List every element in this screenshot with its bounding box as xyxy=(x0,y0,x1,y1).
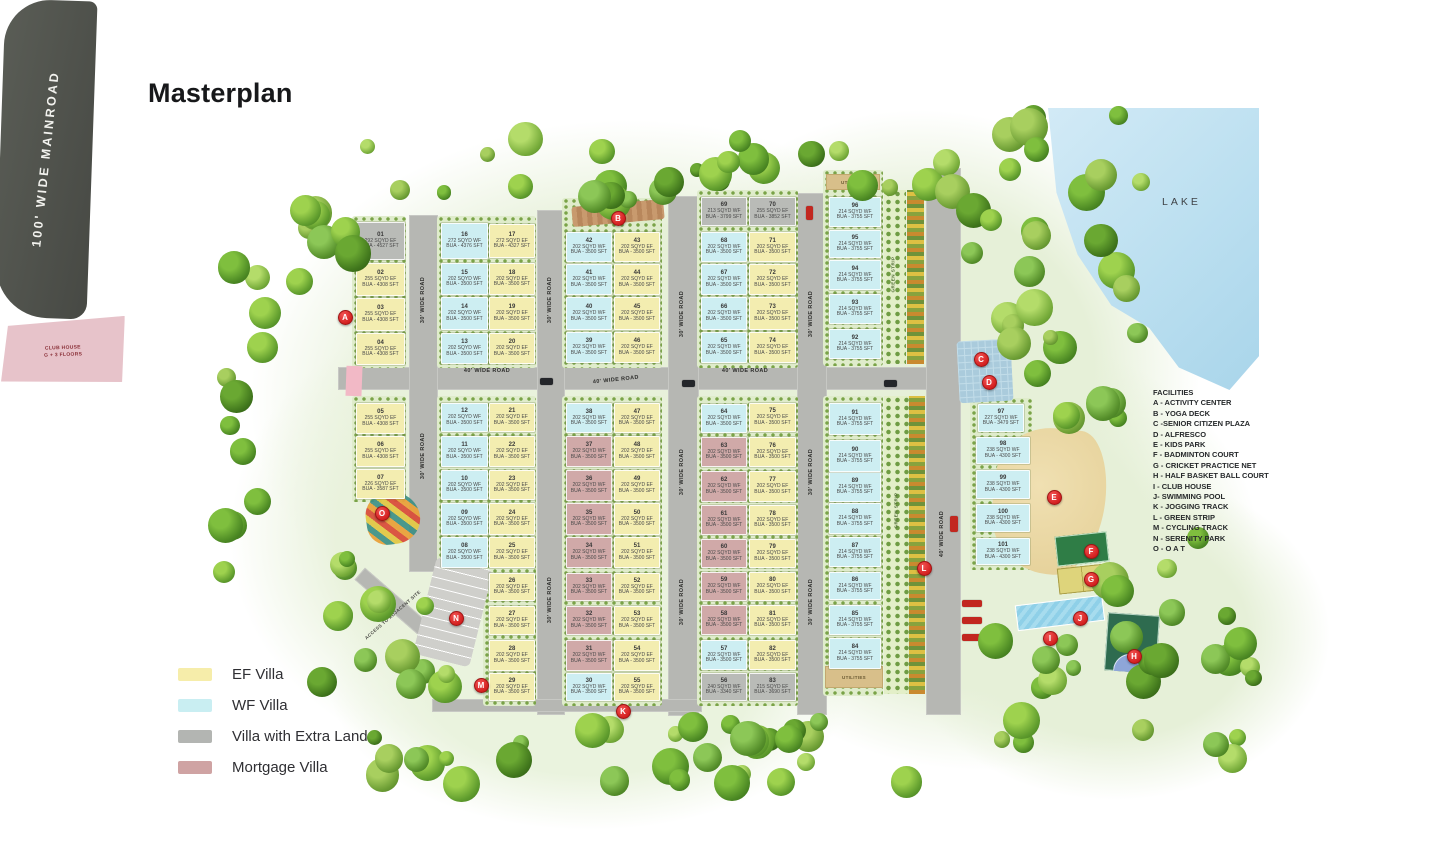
tree xyxy=(218,251,250,283)
tree xyxy=(737,725,769,757)
road-label: 30' WIDE ROAD xyxy=(679,279,687,349)
plot-31: 31202 SQYD WFBUA - 3500 SFT xyxy=(566,640,612,671)
tree xyxy=(589,139,615,165)
tree xyxy=(668,726,684,742)
tree xyxy=(956,193,991,228)
road-label: 30' WIDE ROAD xyxy=(679,567,687,637)
facilities-title: FACILITIES xyxy=(1153,388,1283,398)
plot-22: 22202 SQYD EFBUA - 3500 SFT xyxy=(489,436,535,467)
plot-10: 10202 SQYD WFBUA - 3500 SFT xyxy=(441,470,488,500)
facilities-list: A - ACTIVITY CENTERB - YOGA DECKC -SENIO… xyxy=(1153,398,1283,554)
tree xyxy=(220,416,240,436)
road-label: 40' WIDE ROAD xyxy=(452,368,522,376)
plot-69: 69213 SQYD WFBUA - 3799 SFT xyxy=(701,197,747,226)
facility-marker-K: K xyxy=(616,704,631,719)
plot-38: 38202 SQYD WFBUA - 3500 SFT xyxy=(566,403,612,433)
plot-60: 60202 SQYD WFBUA - 3500 SFT xyxy=(701,539,747,568)
car xyxy=(682,380,695,387)
plot-05: 05255 SQYD EFBUA - 4308 SFT xyxy=(356,403,405,434)
tree xyxy=(748,152,780,184)
tree xyxy=(1229,729,1246,746)
facility-item: L - GREEN STRIP xyxy=(1153,513,1283,523)
plot-13: 13202 SQYD WFBUA - 3500 SFT xyxy=(441,333,488,364)
tree xyxy=(797,753,815,771)
plot-85: 85214 SQYD WFBUA - 3755 SFT xyxy=(829,605,881,635)
legend-swatch xyxy=(178,699,212,712)
tree xyxy=(217,368,236,387)
legend-label: Mortgage Villa xyxy=(232,759,328,776)
facility-item: N - SERENITY PARK xyxy=(1153,534,1283,544)
plot-41: 41202 SQYD WFBUA - 3500 SFT xyxy=(566,264,612,295)
plot-23: 23202 SQYD EFBUA - 3500 SFT xyxy=(489,470,535,500)
plot-76: 76202 SQYD EFBUA - 3500 SFT xyxy=(749,437,796,467)
tree xyxy=(654,167,684,197)
plot-20: 20202 SQYD EFBUA - 3500 SFT xyxy=(489,333,535,364)
plot-73: 73202 SQYD EFBUA - 3500 SFT xyxy=(749,297,796,330)
facility-marker-E: E xyxy=(1047,490,1062,505)
plot-47: 47202 SQYD EFBUA - 3500 SFT xyxy=(614,403,660,433)
plot-63: 63202 SQYD WFBUA - 3500 SFT xyxy=(701,437,747,467)
facility-item: C -SENIOR CITIZEN PLAZA xyxy=(1153,419,1283,429)
plot-86: 86214 SQYD WFBUA - 3755 SFT xyxy=(829,572,881,600)
tree xyxy=(213,561,235,583)
tree xyxy=(439,751,454,766)
entry-gate xyxy=(345,366,362,397)
tree xyxy=(1032,646,1060,674)
tree xyxy=(575,713,610,748)
tree xyxy=(1013,732,1034,753)
plot-12: 12202 SQYD WFBUA - 3500 SFT xyxy=(441,403,488,432)
tree xyxy=(323,601,353,631)
plot-80: 80202 SQYD EFBUA - 3500 SFT xyxy=(749,572,796,601)
plot-53: 53202 SQYD EFBUA - 3500 SFT xyxy=(614,606,660,635)
tree xyxy=(1127,323,1148,344)
plot-49: 49202 SQYD EFBUA - 3500 SFT xyxy=(614,470,660,501)
plot-33: 33202 SQYD WFBUA - 3500 SFT xyxy=(566,573,612,601)
facility-item: G - CRICKET PRACTICE NET xyxy=(1153,461,1283,471)
tree xyxy=(758,728,781,751)
tree xyxy=(443,766,479,802)
facility-item: E - KIDS PARK xyxy=(1153,440,1283,450)
tree xyxy=(596,716,624,744)
road-label: 40' WIDE ROAD xyxy=(939,499,947,569)
tree xyxy=(330,552,355,577)
green-strip-label: GREEN STRIP xyxy=(891,240,896,310)
legend-row: Mortgage Villa xyxy=(178,761,368,774)
main-road-100ft: 100' WIDE MAINROAD xyxy=(0,0,98,320)
facility-marker-O: O xyxy=(375,506,390,521)
facility-item: M - CYCLING TRACK xyxy=(1153,523,1283,533)
plot-50: 50202 SQYD EFBUA - 3500 SFT xyxy=(614,503,660,535)
facility-marker-C: C xyxy=(974,352,989,367)
tree xyxy=(740,725,774,759)
tree xyxy=(699,157,732,190)
tree xyxy=(1043,330,1058,345)
road-label: 30' WIDE ROAD xyxy=(808,567,816,637)
tree xyxy=(1218,744,1247,773)
tree xyxy=(396,669,426,699)
plot-98: 98238 SQYD WFBUA - 4300 SFT xyxy=(976,437,1030,464)
facility-item: K - JOGGING TRACK xyxy=(1153,502,1283,512)
red-car xyxy=(950,516,958,532)
tree xyxy=(991,302,1024,335)
plot-87: 87214 SQYD WFBUA - 3755 SFT xyxy=(829,537,881,567)
plot-62: 62202 SQYD WFBUA - 3500 SFT xyxy=(701,471,747,502)
plot-27: 27202 SQYD EFBUA - 3500 SFT xyxy=(489,606,535,635)
tree xyxy=(1031,676,1053,698)
tree xyxy=(286,268,313,295)
plot-82: 82202 SQYD EFBUA - 3500 SFT xyxy=(749,640,796,670)
plot-19: 19202 SQYD EFBUA - 3500 SFT xyxy=(489,297,535,330)
tree xyxy=(404,747,429,772)
plot-77: 77202 SQYD EFBUA - 3500 SFT xyxy=(749,471,796,502)
tree xyxy=(367,730,382,745)
tree xyxy=(1157,559,1176,578)
plot-70: 70255 SQYD EFBUA - 3852 SFT xyxy=(749,197,796,226)
plot-55: 55202 SQYD EFBUA - 3500 SFT xyxy=(614,673,660,701)
plot-02: 02255 SQYD EFBUA - 4308 SFT xyxy=(356,263,405,296)
plot-56: 56240 SQYD WFBUA - 3340 SFT xyxy=(701,673,747,701)
tree xyxy=(729,130,751,152)
tree xyxy=(1224,627,1257,660)
tree xyxy=(810,713,828,731)
tree xyxy=(247,332,278,363)
tree xyxy=(360,139,376,155)
facilities-panel: FACILITIES A - ACTIVITY CENTERB - YOGA D… xyxy=(1153,388,1283,555)
club-house: CLUB HOUSE G + 3 FLOORS xyxy=(0,316,127,386)
road-label: 30' WIDE ROAD xyxy=(547,265,555,335)
tree xyxy=(508,174,533,199)
tree xyxy=(783,719,807,743)
road-label: 30' WIDE ROAD xyxy=(420,265,428,335)
tree xyxy=(390,180,410,200)
plot-39: 39202 SQYD WFBUA - 3500 SFT xyxy=(566,332,612,363)
tree xyxy=(508,122,542,156)
legend-swatch xyxy=(178,761,212,774)
road-40ft-vertical xyxy=(926,168,961,715)
tree xyxy=(600,766,630,796)
legend-row: EF Villa xyxy=(178,668,368,681)
tree xyxy=(693,743,722,772)
flower-median xyxy=(909,396,925,694)
tree xyxy=(1086,386,1121,421)
plot-28: 28202 SQYD EFBUA - 3500 SFT xyxy=(489,640,535,671)
legend-label: WF Villa xyxy=(232,697,288,714)
plot-11: 11202 SQYD WFBUA - 3500 SFT xyxy=(441,436,488,467)
facility-marker-B: B xyxy=(611,211,626,226)
tree xyxy=(1056,634,1078,656)
plot-97: 97227 SQYD WFBUA - 3479 SFT xyxy=(978,404,1024,432)
tree xyxy=(690,163,704,177)
legend-swatch xyxy=(178,730,212,743)
tree xyxy=(733,765,751,783)
tree xyxy=(339,551,355,567)
tree xyxy=(767,768,795,796)
red-car xyxy=(806,206,813,220)
tree xyxy=(1021,217,1049,245)
plot-91: 91214 SQYD WFBUA - 3755 SFT xyxy=(829,403,881,435)
tree xyxy=(829,141,849,161)
plot-94: 94214 SQYD WFBUA - 3755 SFT xyxy=(829,260,881,290)
tree xyxy=(245,265,270,290)
tree xyxy=(1002,314,1025,337)
tree xyxy=(1203,732,1228,757)
road-label: 30' WIDE ROAD xyxy=(547,565,555,635)
tree xyxy=(513,735,529,751)
plot-08: 08202 SQYD WFBUA - 3500 SFT xyxy=(441,537,488,568)
tree xyxy=(438,665,455,682)
legend-swatch xyxy=(178,668,212,681)
tree xyxy=(798,141,824,167)
plot-18: 18202 SQYD EFBUA - 3500 SFT xyxy=(489,263,535,295)
lake-label: LAKE xyxy=(1162,196,1201,208)
tree xyxy=(669,769,690,790)
tree xyxy=(717,151,740,174)
plot-17: 17272 SQYD EFBUA - 4327 SFT xyxy=(489,224,535,258)
facility-marker-I: I xyxy=(1043,631,1058,646)
plot-16: 16272 SQYD WFBUA - 4376 SFT xyxy=(441,223,488,259)
tree xyxy=(332,604,353,625)
plot-01: 01292 SQYD EFBUA - 4527 SFT xyxy=(356,222,405,260)
plot-40: 40202 SQYD WFBUA - 3500 SFT xyxy=(566,297,612,330)
plot-26: 26202 SQYD EFBUA - 3500 SFT xyxy=(489,573,535,601)
tree xyxy=(375,744,404,773)
plot-59: 59202 SQYD WFBUA - 3500 SFT xyxy=(701,572,747,601)
car xyxy=(540,378,553,385)
tree xyxy=(1213,644,1245,676)
plot-45: 45202 SQYD EFBUA - 3500 SFT xyxy=(614,297,660,330)
tree xyxy=(333,556,357,580)
facility-item: B - YOGA DECK xyxy=(1153,409,1283,419)
swimming-pool xyxy=(1015,595,1106,632)
tree xyxy=(738,143,769,174)
tree xyxy=(1024,137,1049,162)
tree xyxy=(1245,670,1261,686)
tree xyxy=(1010,108,1048,146)
facility-marker-G: G xyxy=(1084,572,1099,587)
road-label: 30' WIDE ROAD xyxy=(808,437,816,507)
plot-42: 42202 SQYD WFBUA - 3500 SFT xyxy=(566,232,612,262)
plot-78: 78202 SQYD EFBUA - 3500 SFT xyxy=(749,505,796,535)
tree xyxy=(1003,702,1040,739)
facility-item: H - HALF BASKET BALL COURT xyxy=(1153,471,1283,481)
tree xyxy=(891,766,922,797)
plot-35: 35202 SQYD WFBUA - 3500 SFT xyxy=(566,503,612,535)
plot-89: 89214 SQYD WFBUA - 3755 SFT xyxy=(829,472,881,502)
plot-93: 93214 SQYD WFBUA - 3755 SFT xyxy=(829,294,881,324)
lake xyxy=(1048,108,1259,390)
plot-36: 36202 SQYD WFBUA - 3500 SFT xyxy=(566,470,612,501)
plot-25: 25202 SQYD EFBUA - 3500 SFT xyxy=(489,537,535,568)
tree xyxy=(999,158,1022,181)
plot-14: 14202 SQYD WFBUA - 3500 SFT xyxy=(441,297,488,330)
plot-61: 61202 SQYD WFBUA - 3500 SFT xyxy=(701,505,747,535)
plot-34: 34202 SQYD WFBUA - 3500 SFT xyxy=(566,537,612,568)
plot-54: 54202 SQYD EFBUA - 3500 SFT xyxy=(614,640,660,671)
legend-label: EF Villa xyxy=(232,666,283,683)
plot-57: 57202 SQYD WFBUA - 3500 SFT xyxy=(701,640,747,670)
plot-79: 79202 SQYD EFBUA - 3500 SFT xyxy=(749,539,796,568)
half-basketball-court xyxy=(1104,612,1160,673)
plot-100: 100238 SQYD WFBUA - 4300 SFT xyxy=(976,504,1030,532)
plot-72: 72202 SQYD EFBUA - 3500 SFT xyxy=(749,264,796,295)
tree xyxy=(208,508,243,543)
tree xyxy=(366,758,400,792)
plot-99: 99238 SQYD WFBUA - 4300 SFT xyxy=(976,470,1030,499)
plot-96: 96214 SQYD WFBUA - 3755 SFT xyxy=(829,197,881,227)
tree xyxy=(1096,388,1126,418)
tree xyxy=(1201,644,1231,674)
facility-item: J- SWIMMING POOL xyxy=(1153,492,1283,502)
tree xyxy=(307,225,341,259)
road-label: 30' WIDE ROAD xyxy=(420,421,428,491)
legend-row: Villa with Extra Land xyxy=(178,730,368,743)
facility-marker-F: F xyxy=(1084,544,1099,559)
plot-21: 21202 SQYD EFBUA - 3500 SFT xyxy=(489,403,535,432)
facility-marker-N: N xyxy=(449,611,464,626)
tree xyxy=(411,659,435,683)
tree xyxy=(410,745,445,780)
tree xyxy=(301,201,329,229)
plot-83: 83215 SQYD EFBUA - 3690 SFT xyxy=(749,673,796,701)
tree xyxy=(775,725,803,753)
page-title: Masterplan xyxy=(148,78,293,109)
plot-90: 90214 SQYD WFBUA - 3755 SFT xyxy=(829,440,881,472)
plot-81: 81202 SQYD EFBUA - 3500 SFT xyxy=(749,605,796,635)
plot-09: 09202 SQYD WFBUA - 3500 SFT xyxy=(441,503,488,535)
plot-51: 51202 SQYD EFBUA - 3500 SFT xyxy=(614,537,660,568)
tree xyxy=(1024,360,1051,387)
masterplan-canvas: LAKE 100' WIDE MAINROAD ACCESS TO ADJACE… xyxy=(0,0,1440,867)
road-label: 30' WIDE ROAD xyxy=(679,437,687,507)
plot-30: 30202 SQYD WFBUA - 3500 SFT xyxy=(566,673,612,701)
plot-74: 74202 SQYD EFBUA - 3500 SFT xyxy=(749,332,796,363)
tree xyxy=(1240,657,1260,677)
tree xyxy=(1109,409,1127,427)
facility-item: I - CLUB HOUSE xyxy=(1153,482,1283,492)
tree xyxy=(978,623,1013,658)
facility-item: F - BADMINTON COURT xyxy=(1153,450,1283,460)
facility-marker-A: A xyxy=(338,310,353,325)
plot-03: 03255 SQYD EFBUA - 4308 SFT xyxy=(356,298,405,331)
facility-marker-M: M xyxy=(474,678,489,693)
tree xyxy=(1218,607,1236,625)
tree xyxy=(496,742,532,778)
tree xyxy=(730,721,766,757)
senior-citizen-plaza xyxy=(956,339,1013,404)
plot-15: 15202 SQYD WFBUA - 3500 SFT xyxy=(441,263,488,295)
plot-68: 68202 SQYD WFBUA - 3500 SFT xyxy=(701,232,747,262)
plot-44: 44202 SQYD EFBUA - 3500 SFT xyxy=(614,264,660,295)
tree xyxy=(992,117,1027,152)
facility-marker-J: J xyxy=(1073,611,1088,626)
tree xyxy=(299,196,333,230)
tree xyxy=(244,488,271,515)
plot-06: 06255 SQYD EFBUA - 4308 SFT xyxy=(356,436,405,467)
car xyxy=(884,380,897,387)
plot-95: 95214 SQYD WFBUA - 3755 SFT xyxy=(829,230,881,258)
tree xyxy=(290,195,321,226)
fire-truck xyxy=(962,600,982,607)
tree xyxy=(1022,221,1051,250)
facility-marker-H: H xyxy=(1127,649,1142,664)
tree xyxy=(1014,256,1045,287)
tree xyxy=(1043,331,1077,365)
plot-84: 84214 SQYD WFBUA - 3755 SFT xyxy=(829,638,881,669)
plot-71: 71202 SQYD EFBUA - 3500 SFT xyxy=(749,232,796,262)
road-label: 30' WIDE ROAD xyxy=(808,279,816,349)
plot-66: 66202 SQYD WFBUA - 3500 SFT xyxy=(701,297,747,330)
tree xyxy=(994,731,1011,748)
facility-item: A - ACTIVITY CENTER xyxy=(1153,398,1283,408)
tree xyxy=(652,748,689,785)
tree xyxy=(298,217,320,239)
plot-46: 46202 SQYD EFBUA - 3500 SFT xyxy=(614,332,660,363)
plot-32: 32202 SQYD WFBUA - 3500 SFT xyxy=(566,606,612,635)
plot-92: 92214 SQYD WFBUA - 3755 SFT xyxy=(829,329,881,359)
legend-label: Villa with Extra Land xyxy=(232,728,368,745)
utilities-box: UTILITIES xyxy=(825,666,883,688)
road-label: 40' WIDE ROAD xyxy=(710,368,780,376)
plot-29: 29202 SQYD EFBUA - 3500 SFT xyxy=(489,673,535,701)
tree xyxy=(721,715,740,734)
plot-88: 88214 SQYD WFBUA - 3755 SFT xyxy=(829,503,881,534)
tree xyxy=(1016,289,1052,325)
tree xyxy=(1066,660,1081,675)
tree xyxy=(218,511,247,540)
plot-75: 75202 SQYD EFBUA - 3500 SFT xyxy=(749,403,796,432)
facility-item: D - ALFRESCO xyxy=(1153,430,1283,440)
tree xyxy=(1038,666,1066,694)
tree xyxy=(714,765,750,801)
plot-48: 48202 SQYD EFBUA - 3500 SFT xyxy=(614,436,660,467)
tree xyxy=(1053,402,1081,430)
tree xyxy=(220,380,253,413)
tree xyxy=(437,185,452,200)
tree xyxy=(708,170,730,192)
plot-43: 43202 SQYD EFBUA - 3500 SFT xyxy=(614,232,660,262)
flower-median xyxy=(907,190,924,364)
tree xyxy=(230,438,257,465)
plot-07: 07226 SQYD EFBUA - 3587 SFT xyxy=(356,469,405,499)
facility-marker-L: L xyxy=(917,561,932,576)
fire-truck xyxy=(962,617,982,624)
plot-37: 37202 SQYD WFBUA - 3500 SFT xyxy=(566,436,612,467)
tree xyxy=(1132,719,1154,741)
tree xyxy=(1021,105,1046,130)
tree xyxy=(480,147,495,162)
plot-67: 67202 SQYD WFBUA - 3500 SFT xyxy=(701,264,747,295)
facility-item: O - O A T xyxy=(1153,544,1283,554)
plot-65: 65202 SQYD WFBUA - 3500 SFT xyxy=(701,332,747,363)
club-house-floors: G + 3 FLOORS xyxy=(44,351,82,358)
green-strip-label: GREEN STRIP xyxy=(894,476,899,546)
plot-24: 24202 SQYD EFBUA - 3500 SFT xyxy=(489,503,535,535)
tree xyxy=(961,242,983,264)
legend-row: WF Villa xyxy=(178,699,368,712)
plot-58: 58202 SQYD WFBUA - 3500 SFT xyxy=(701,605,747,635)
badminton-court xyxy=(1055,531,1110,566)
tree xyxy=(249,297,281,329)
plot-52: 52202 SQYD EFBUA - 3500 SFT xyxy=(614,573,660,601)
tree xyxy=(980,209,1003,232)
tree xyxy=(793,721,824,752)
tree xyxy=(786,733,800,747)
tree xyxy=(678,712,708,742)
tree xyxy=(1159,599,1186,626)
fire-truck xyxy=(962,634,982,641)
plot-04: 04255 SQYD EFBUA - 4308 SFT xyxy=(356,333,405,365)
